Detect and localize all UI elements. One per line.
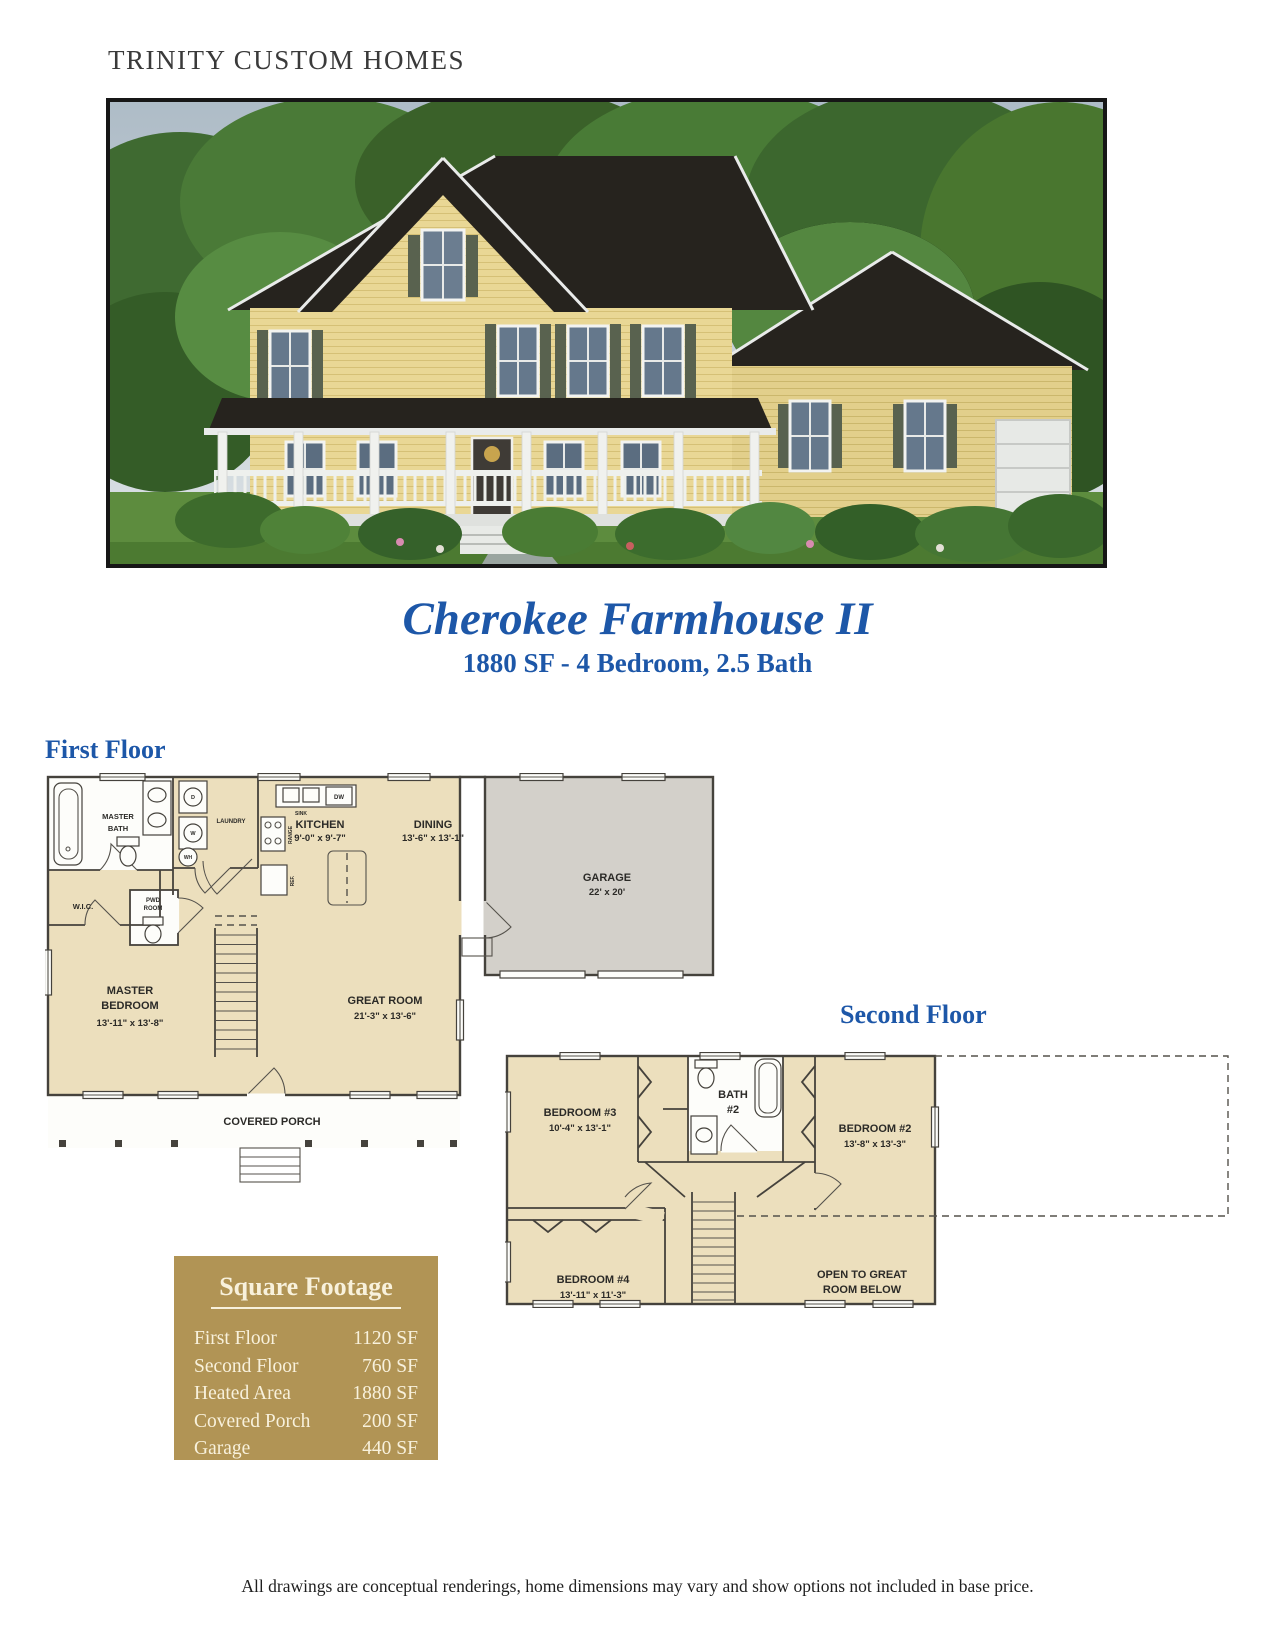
svg-text:22' x 20': 22' x 20' <box>589 887 625 898</box>
row-label: Garage <box>194 1435 250 1463</box>
flyer-page: TRINITY CUSTOM HOMES <box>0 0 1275 1650</box>
row-value: 1880 SF <box>352 1380 418 1408</box>
row-value: 440 SF <box>362 1435 418 1463</box>
washer-label: W <box>190 831 196 837</box>
row-value: 200 SF <box>362 1408 418 1436</box>
svg-text:#2: #2 <box>727 1104 739 1116</box>
svg-text:10'-4" x 13'-1": 10'-4" x 13'-1" <box>549 1123 611 1134</box>
svg-text:13'-11" x 13'-8": 13'-11" x 13'-8" <box>97 1018 164 1029</box>
square-footage-title: Square Footage <box>211 1272 401 1309</box>
master-bath-label: MASTER <box>102 812 134 821</box>
range-label: RANGE <box>288 825 294 844</box>
powder-room-fixtures <box>143 917 163 943</box>
plan-specs: 1880 SF - 4 Bedroom, 2.5 Bath <box>0 648 1275 679</box>
upper-window-left <box>257 330 323 402</box>
table-row: Heated Area 1880 SF <box>174 1380 438 1408</box>
second-floor-heading: Second Floor <box>840 1000 987 1030</box>
plan-title: Cherokee Farmhouse II <box>0 592 1275 646</box>
covered-porch-label: COVERED PORCH <box>223 1116 320 1128</box>
svg-text:13'-6" x 13'-1": 13'-6" x 13'-1" <box>402 833 464 844</box>
water-heater-label: WH <box>184 855 193 861</box>
garage-window-1 <box>778 401 842 471</box>
row-label: Covered Porch <box>194 1408 310 1436</box>
svg-text:BATH: BATH <box>108 824 128 833</box>
row-label: Second Floor <box>194 1353 299 1381</box>
upper-window-3 <box>630 324 696 400</box>
garage-label: GARAGE <box>583 872 631 884</box>
svg-text:BEDROOM: BEDROOM <box>101 1000 158 1012</box>
porch-steps <box>240 1148 300 1182</box>
upper-window-1 <box>485 324 551 400</box>
powder-room-label: PWD <box>146 898 161 904</box>
wic-label: W.I.C. <box>73 902 93 911</box>
bedroom3-label: BEDROOM #3 <box>544 1107 617 1119</box>
open-to-below-label: OPEN TO GREAT <box>817 1269 907 1281</box>
row-label: Heated Area <box>194 1380 291 1408</box>
bath2-label: BATH <box>718 1089 748 1101</box>
second-floor-plan: BEDROOM #3 10'-4" x 13'-1" BATH #2 BEDRO… <box>505 1052 1230 1308</box>
svg-text:ROOM BELOW: ROOM BELOW <box>823 1284 902 1296</box>
table-row: Second Floor 760 SF <box>174 1353 438 1381</box>
table-row: Garage 440 SF <box>174 1435 438 1463</box>
dryer-label: D <box>191 795 195 801</box>
row-value: 1120 SF <box>353 1325 418 1353</box>
svg-text:21'-3" x 13'-6": 21'-3" x 13'-6" <box>354 1011 416 1022</box>
great-room-label: GREAT ROOM <box>348 995 423 1007</box>
first-floor-heading: First Floor <box>45 735 166 765</box>
disclaimer-text: All drawings are conceptual renderings, … <box>0 1576 1275 1597</box>
table-row: First Floor 1120 SF <box>174 1325 438 1353</box>
svg-text:13'-8" x 13'-3": 13'-8" x 13'-3" <box>844 1139 906 1150</box>
square-footage-table: Square Footage First Floor 1120 SF Secon… <box>174 1256 438 1460</box>
bedroom2-label: BEDROOM #2 <box>839 1123 912 1135</box>
porch-fascia <box>204 428 776 435</box>
upper-window-2 <box>555 324 621 400</box>
garage-window-2 <box>893 401 957 471</box>
kitchen-label: KITCHEN <box>296 819 345 831</box>
brand-logo-text: TRINITY CUSTOM HOMES <box>108 45 465 76</box>
master-bedroom-label: MASTER <box>107 985 154 997</box>
house-rendering-svg <box>110 102 1103 564</box>
refrigerator-label: REF. <box>290 875 296 886</box>
dishwasher-label: DW <box>334 795 344 801</box>
svg-text:ROOM: ROOM <box>144 906 163 912</box>
svg-text:13'-11" x 11'-3": 13'-11" x 11'-3" <box>560 1290 626 1301</box>
svg-text:9'-0" x 9'-7": 9'-0" x 9'-7" <box>294 833 346 844</box>
bedroom4-label: BEDROOM #4 <box>557 1274 631 1286</box>
row-label: First Floor <box>194 1325 277 1353</box>
sink-label: SINK <box>295 811 307 817</box>
laundry-label: LAUNDRY <box>216 819 245 825</box>
attic-window <box>408 230 478 300</box>
dining-label: DINING <box>414 819 453 831</box>
table-row: Covered Porch 200 SF <box>174 1408 438 1436</box>
house-rendering-photo <box>106 98 1107 568</box>
row-value: 760 SF <box>362 1353 418 1381</box>
porch-roof <box>208 398 773 432</box>
